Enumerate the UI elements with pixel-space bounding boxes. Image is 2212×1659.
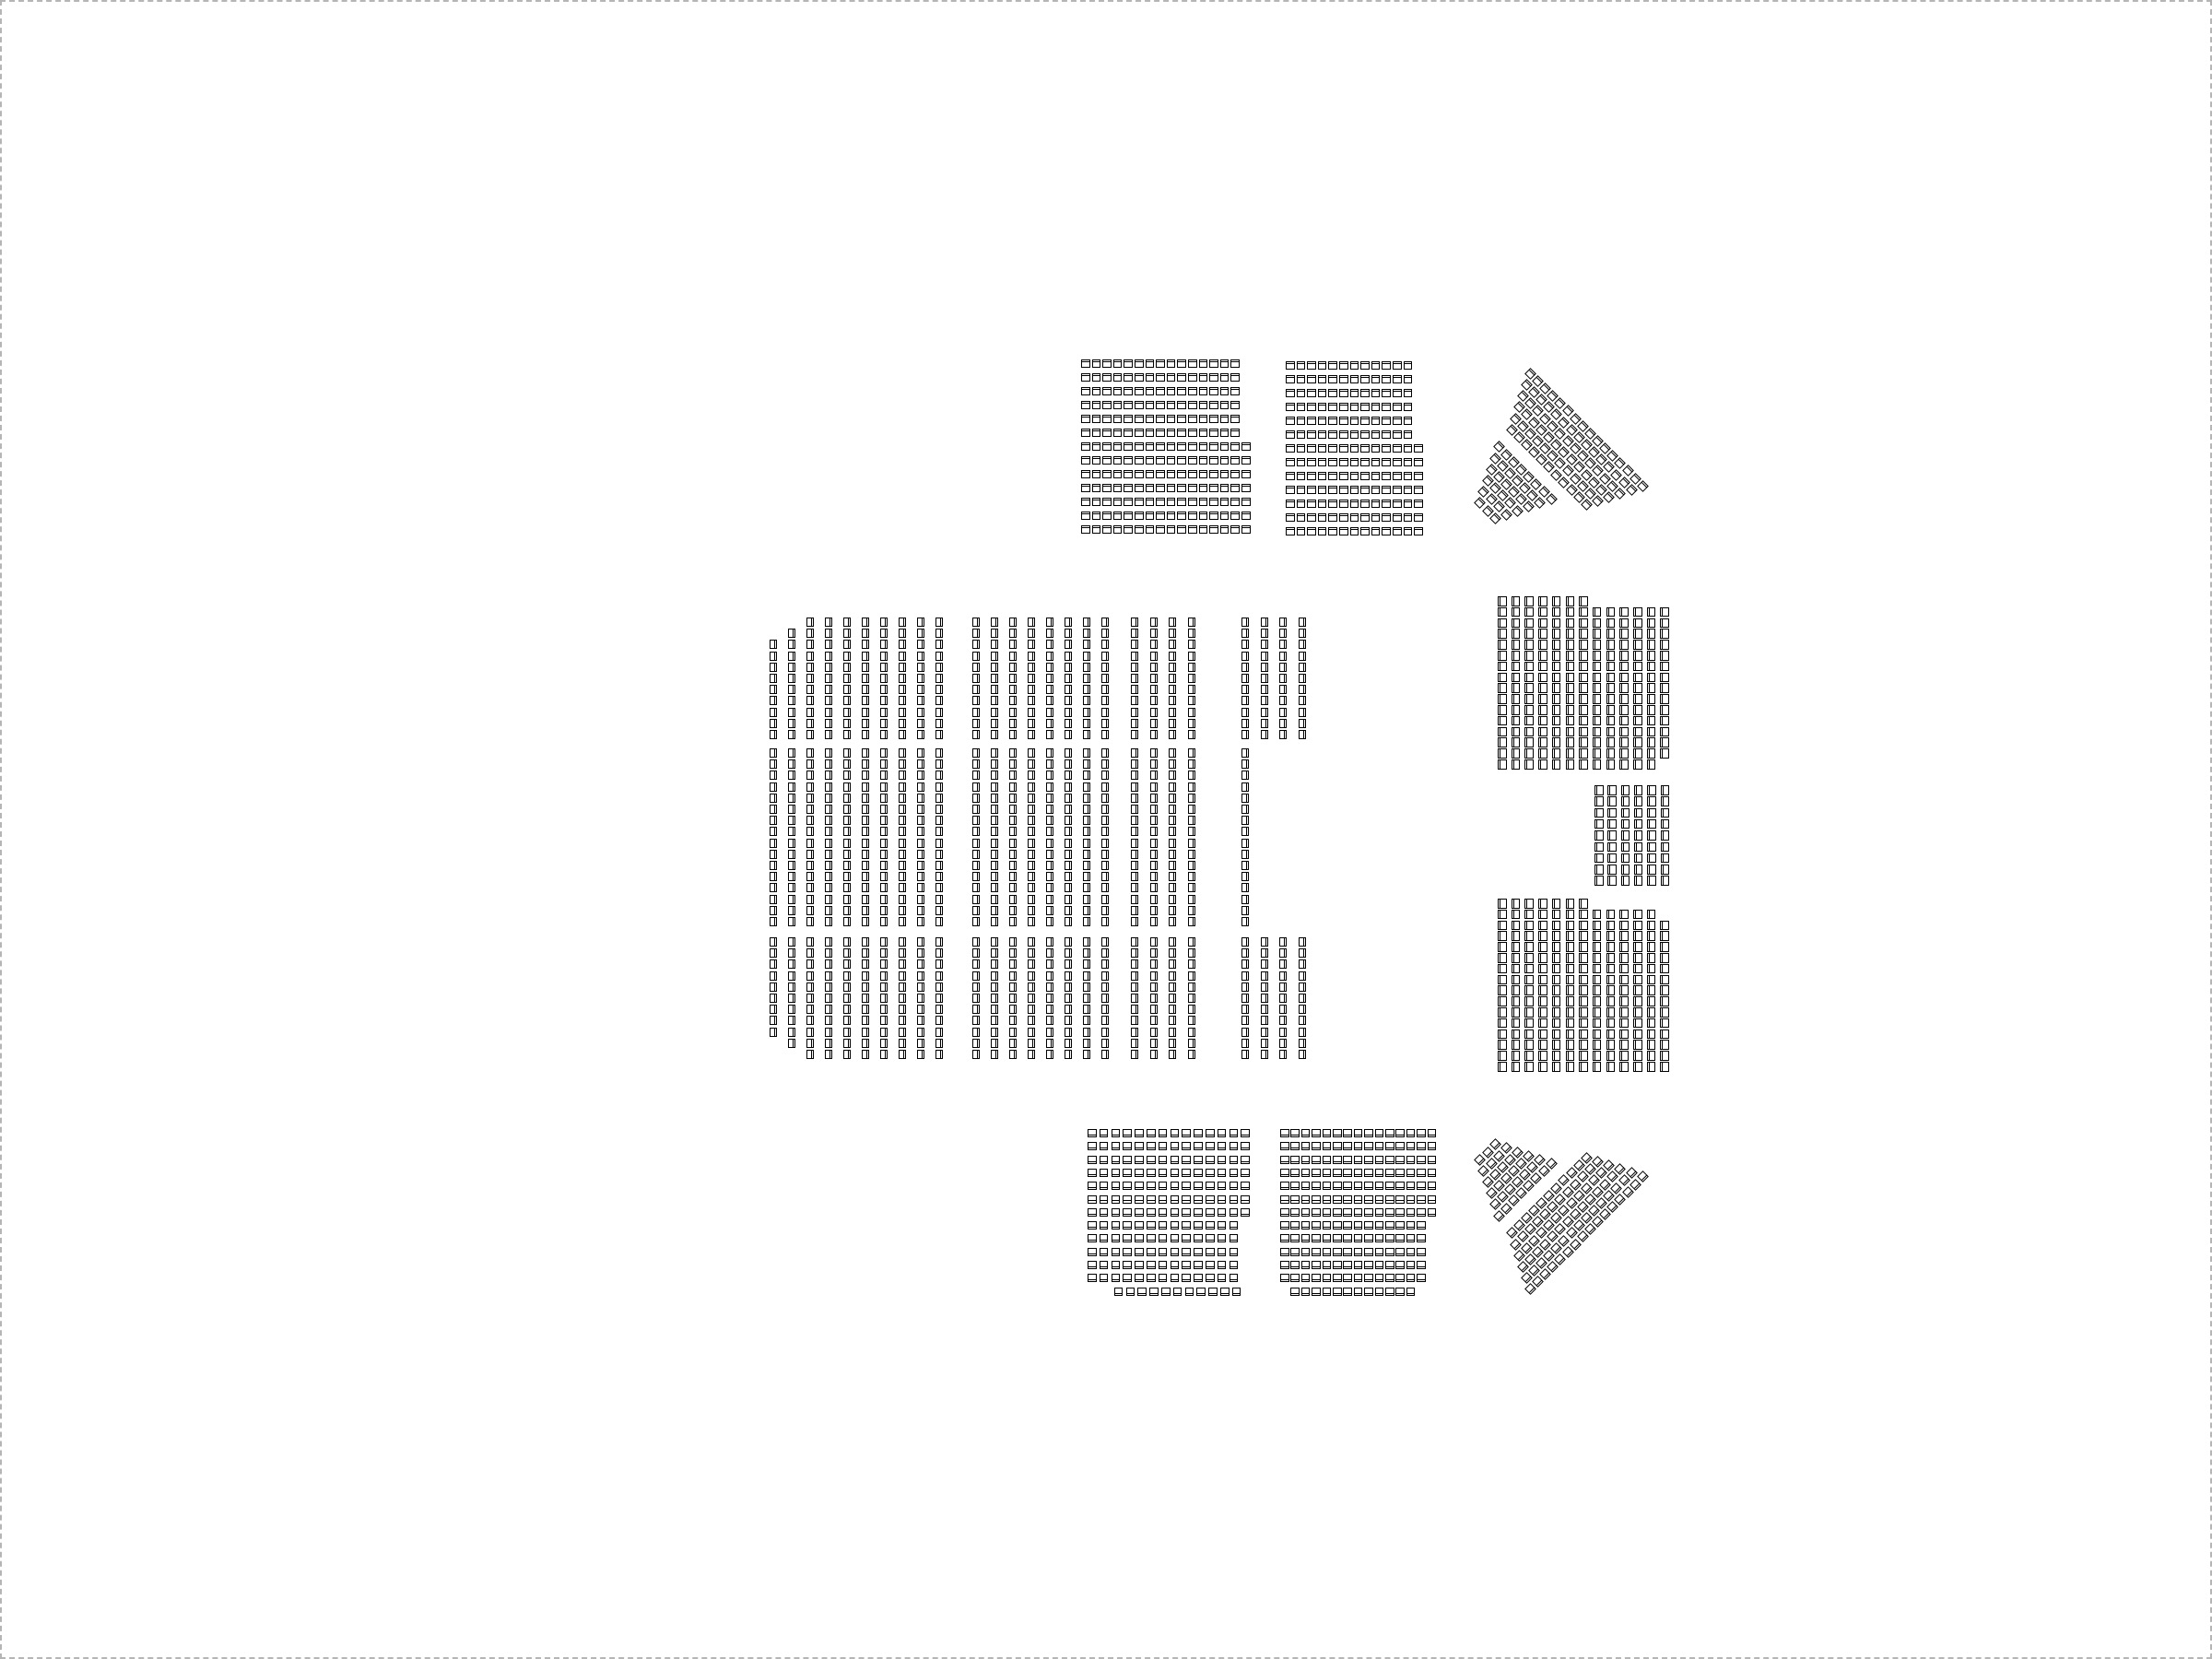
seat[interactable] [1113, 512, 1123, 520]
seat[interactable] [825, 674, 832, 683]
seat[interactable] [1512, 759, 1521, 770]
seat[interactable] [1088, 1248, 1097, 1256]
seat[interactable] [825, 971, 832, 981]
seat[interactable] [1647, 759, 1656, 770]
seat[interactable] [1241, 1129, 1250, 1137]
seat[interactable] [1538, 1018, 1547, 1029]
seat[interactable] [1028, 948, 1035, 958]
seat[interactable] [1112, 1156, 1121, 1164]
seat[interactable] [1328, 486, 1337, 494]
seat[interactable] [1112, 1208, 1121, 1217]
seat[interactable] [1156, 359, 1165, 368]
seat[interactable] [862, 1039, 869, 1048]
seat[interactable] [1113, 387, 1123, 395]
seat[interactable] [1028, 640, 1035, 649]
seat[interactable] [1297, 527, 1306, 535]
seat[interactable] [1538, 899, 1547, 909]
seat[interactable] [1512, 942, 1521, 952]
seat[interactable] [1528, 1235, 1540, 1247]
seat[interactable] [1566, 640, 1575, 650]
seat[interactable] [1218, 1182, 1227, 1190]
seat[interactable] [1606, 651, 1616, 661]
seat[interactable] [1028, 1050, 1035, 1059]
seat[interactable] [935, 1039, 943, 1048]
seat[interactable] [1261, 994, 1268, 1003]
seat[interactable] [1290, 1156, 1300, 1164]
seat[interactable] [1404, 403, 1413, 411]
seat[interactable] [843, 805, 851, 814]
seat[interactable] [1102, 525, 1112, 534]
seat[interactable] [1619, 705, 1629, 715]
seat[interactable] [1621, 785, 1630, 795]
seat[interactable] [1188, 917, 1195, 926]
seat[interactable] [1028, 816, 1035, 825]
seat[interactable] [1594, 853, 1604, 864]
seat[interactable] [1135, 1234, 1144, 1242]
seat[interactable] [1524, 759, 1534, 770]
seat[interactable] [1209, 359, 1218, 368]
seat[interactable] [1633, 1040, 1642, 1050]
seat[interactable] [1112, 1169, 1121, 1177]
seat[interactable] [1171, 1156, 1180, 1164]
seat[interactable] [1188, 1039, 1195, 1048]
seat[interactable] [1538, 942, 1547, 952]
seat[interactable] [1375, 1261, 1384, 1269]
seat[interactable] [1579, 964, 1588, 974]
seat[interactable] [1131, 782, 1138, 792]
seat[interactable] [972, 1016, 980, 1025]
seat[interactable] [1188, 415, 1197, 423]
seat[interactable] [1065, 748, 1072, 758]
seat[interactable] [917, 618, 924, 627]
seat[interactable] [991, 696, 998, 705]
seat[interactable] [843, 895, 851, 904]
seat[interactable] [1083, 982, 1090, 992]
seat[interactable] [1209, 415, 1218, 423]
seat[interactable] [1092, 442, 1101, 451]
seat[interactable] [770, 771, 777, 780]
seat[interactable] [1512, 953, 1521, 963]
seat[interactable] [1417, 1169, 1426, 1177]
seat[interactable] [1194, 1129, 1203, 1137]
seat[interactable] [972, 816, 980, 825]
seat[interactable] [1633, 975, 1642, 985]
seat[interactable] [1046, 850, 1053, 859]
seat[interactable] [843, 850, 851, 859]
seat[interactable] [862, 959, 869, 969]
seat[interactable] [991, 640, 998, 649]
seat[interactable] [1647, 931, 1656, 941]
seat[interactable] [1100, 1156, 1109, 1164]
seat[interactable] [1371, 389, 1381, 397]
seat[interactable] [972, 771, 980, 780]
seat[interactable] [1230, 484, 1240, 492]
seat[interactable] [1299, 674, 1306, 683]
seat[interactable] [1046, 794, 1053, 803]
seat[interactable] [1606, 759, 1616, 770]
seat[interactable] [1241, 1156, 1250, 1164]
seat[interactable] [1028, 759, 1035, 769]
seat[interactable] [1498, 596, 1507, 606]
seat[interactable] [1660, 942, 1669, 952]
seat[interactable] [1512, 683, 1521, 693]
seat[interactable] [1417, 1208, 1426, 1217]
seat[interactable] [917, 959, 924, 969]
seat[interactable] [862, 1028, 869, 1037]
seat[interactable] [1552, 931, 1561, 941]
seat[interactable] [1286, 389, 1295, 397]
seat[interactable] [1102, 415, 1112, 423]
seat[interactable] [1009, 982, 1017, 992]
seat[interactable] [1230, 1221, 1239, 1230]
seat[interactable] [1261, 948, 1268, 958]
seat[interactable] [1177, 456, 1186, 465]
seat[interactable] [788, 759, 795, 769]
seat[interactable] [899, 883, 906, 892]
seat[interactable] [899, 730, 906, 739]
seat[interactable] [1241, 748, 1249, 758]
seat[interactable] [1566, 629, 1575, 639]
seat[interactable] [1417, 1142, 1426, 1150]
seat[interactable] [917, 883, 924, 892]
seat[interactable] [1538, 910, 1547, 920]
seat[interactable] [1343, 1221, 1352, 1230]
seat[interactable] [770, 839, 777, 848]
seat[interactable] [1566, 651, 1575, 661]
seat[interactable] [1593, 921, 1602, 931]
seat[interactable] [1299, 663, 1306, 672]
seat[interactable] [1083, 948, 1090, 958]
seat[interactable] [1009, 719, 1017, 728]
seat[interactable] [1065, 861, 1072, 870]
seat[interactable] [1131, 1050, 1138, 1059]
seat[interactable] [1594, 842, 1604, 853]
seat[interactable] [1364, 1142, 1373, 1150]
seat[interactable] [1159, 1129, 1168, 1137]
seat[interactable] [1177, 484, 1186, 492]
seat[interactable] [1406, 1142, 1416, 1150]
seat[interactable] [1393, 361, 1402, 370]
seat[interactable] [1566, 1062, 1575, 1072]
seat[interactable] [1182, 1182, 1191, 1190]
seat[interactable] [1083, 937, 1090, 947]
seat[interactable] [1188, 456, 1197, 465]
seat[interactable] [1169, 696, 1176, 705]
seat[interactable] [1100, 1169, 1109, 1177]
seat[interactable] [1318, 389, 1327, 397]
seat[interactable] [1290, 1129, 1300, 1137]
seat[interactable] [1385, 1274, 1394, 1282]
seat[interactable] [770, 994, 777, 1003]
seat[interactable] [1301, 1248, 1311, 1256]
seat[interactable] [1350, 527, 1359, 535]
seat[interactable] [1290, 1274, 1300, 1282]
seat[interactable] [935, 872, 943, 881]
seat[interactable] [1083, 674, 1090, 683]
seat[interactable] [1124, 456, 1133, 465]
seat[interactable] [1188, 629, 1195, 638]
seat[interactable] [1065, 805, 1072, 814]
seat[interactable] [1364, 1221, 1373, 1230]
seat[interactable] [1112, 1248, 1121, 1256]
seat[interactable] [1299, 719, 1306, 728]
seat[interactable] [1290, 1208, 1300, 1217]
seat[interactable] [1046, 883, 1053, 892]
seat[interactable] [1230, 1234, 1239, 1242]
seat[interactable] [1169, 708, 1176, 717]
seat[interactable] [1241, 629, 1249, 638]
seat[interactable] [1169, 685, 1176, 694]
seat[interactable] [1634, 808, 1643, 818]
seat[interactable] [1360, 472, 1370, 480]
seat[interactable] [1131, 816, 1138, 825]
seat[interactable] [1188, 429, 1197, 437]
seat[interactable] [1297, 403, 1306, 411]
seat[interactable] [880, 994, 888, 1003]
seat[interactable] [1135, 1195, 1144, 1204]
seat[interactable] [1241, 895, 1249, 904]
seat[interactable] [1065, 906, 1072, 915]
seat[interactable] [1579, 651, 1588, 661]
seat[interactable] [1552, 953, 1561, 963]
seat[interactable] [880, 696, 888, 705]
seat[interactable] [1312, 1274, 1321, 1282]
seat[interactable] [1083, 618, 1090, 627]
seat[interactable] [788, 794, 795, 803]
seat[interactable] [1169, 861, 1176, 870]
seat[interactable] [1286, 403, 1295, 411]
seat[interactable] [1538, 705, 1547, 715]
seat[interactable] [1382, 527, 1391, 535]
seat[interactable] [1633, 921, 1642, 931]
seat[interactable] [1633, 683, 1642, 693]
seat[interactable] [1393, 513, 1402, 522]
seat[interactable] [806, 640, 814, 649]
seat[interactable] [972, 663, 980, 672]
seat[interactable] [1312, 1169, 1321, 1177]
seat[interactable] [1065, 794, 1072, 803]
seat[interactable] [1660, 618, 1669, 629]
seat[interactable] [770, 805, 777, 814]
seat[interactable] [843, 959, 851, 969]
seat[interactable] [1009, 748, 1017, 758]
seat[interactable] [1566, 964, 1575, 974]
seat[interactable] [1297, 486, 1306, 494]
seat[interactable] [1299, 730, 1306, 739]
seat[interactable] [880, 1016, 888, 1025]
seat[interactable] [1593, 716, 1602, 726]
seat[interactable] [1552, 651, 1561, 661]
seat[interactable] [1552, 705, 1561, 715]
seat[interactable] [1395, 1288, 1405, 1296]
seat[interactable] [825, 696, 832, 705]
seat[interactable] [1414, 527, 1423, 535]
seat[interactable] [1297, 389, 1306, 397]
seat[interactable] [1299, 971, 1306, 981]
seat[interactable] [1241, 917, 1249, 926]
seat[interactable] [1290, 1182, 1300, 1190]
seat[interactable] [1538, 953, 1547, 963]
seat[interactable] [1241, 1050, 1249, 1059]
seat[interactable] [1593, 1040, 1602, 1050]
seat[interactable] [1028, 685, 1035, 694]
seat[interactable] [1524, 1062, 1534, 1072]
seat[interactable] [1606, 910, 1616, 920]
seat[interactable] [1555, 1253, 1567, 1265]
seat[interactable] [899, 708, 906, 717]
seat[interactable] [1123, 1274, 1132, 1282]
seat[interactable] [1188, 663, 1195, 672]
seat[interactable] [806, 937, 814, 947]
seat[interactable] [1318, 486, 1327, 494]
seat[interactable] [1414, 500, 1423, 508]
seat[interactable] [1619, 651, 1629, 661]
seat[interactable] [880, 906, 888, 915]
seat[interactable] [788, 1016, 795, 1025]
seat[interactable] [1371, 486, 1381, 494]
seat[interactable] [1633, 737, 1642, 747]
seat[interactable] [1241, 512, 1251, 520]
seat[interactable] [1395, 1234, 1405, 1242]
seat[interactable] [1647, 796, 1656, 806]
seat[interactable] [880, 937, 888, 947]
seat[interactable] [1046, 759, 1053, 769]
seat[interactable] [1566, 1227, 1578, 1239]
seat[interactable] [1147, 1274, 1156, 1282]
seat[interactable] [1552, 1062, 1561, 1072]
seat[interactable] [1414, 472, 1423, 480]
seat[interactable] [1101, 618, 1109, 627]
seat[interactable] [1500, 509, 1512, 521]
seat[interactable] [1220, 525, 1230, 534]
seat[interactable] [1123, 1142, 1132, 1150]
seat[interactable] [1579, 1040, 1588, 1050]
seat[interactable] [1607, 865, 1617, 875]
seat[interactable] [1279, 685, 1287, 694]
seat[interactable] [1404, 417, 1413, 425]
seat[interactable] [1220, 373, 1230, 382]
seat[interactable] [1566, 1007, 1575, 1018]
seat[interactable] [1131, 827, 1138, 836]
seat[interactable] [1046, 839, 1053, 848]
seat[interactable] [1364, 1129, 1373, 1137]
seat[interactable] [1619, 737, 1629, 747]
seat[interactable] [1101, 906, 1109, 915]
seat[interactable] [806, 674, 814, 683]
seat[interactable] [1150, 618, 1158, 627]
seat[interactable] [1621, 830, 1630, 841]
seat[interactable] [1512, 910, 1521, 920]
seat[interactable] [1538, 607, 1547, 618]
seat[interactable] [1113, 498, 1123, 506]
seat[interactable] [1112, 1221, 1121, 1230]
seat[interactable] [935, 895, 943, 904]
seat[interactable] [1188, 782, 1195, 792]
seat[interactable] [843, 652, 851, 661]
seat[interactable] [788, 1005, 795, 1014]
seat[interactable] [1135, 498, 1144, 506]
seat[interactable] [1371, 500, 1381, 508]
seat[interactable] [1169, 719, 1176, 728]
seat[interactable] [1647, 865, 1656, 875]
seat[interactable] [1354, 1288, 1363, 1296]
seat[interactable] [1552, 1007, 1561, 1018]
seat[interactable] [770, 850, 777, 859]
seat[interactable] [1092, 498, 1101, 506]
seat[interactable] [1395, 1142, 1405, 1150]
seat[interactable] [1092, 401, 1101, 409]
seat[interactable] [1131, 994, 1138, 1003]
seat[interactable] [1393, 527, 1402, 535]
seat[interactable] [1552, 716, 1561, 726]
seat[interactable] [1167, 525, 1176, 534]
seat[interactable] [1343, 1169, 1352, 1177]
seat[interactable] [1209, 456, 1218, 465]
seat[interactable] [1524, 996, 1534, 1006]
seat[interactable] [1009, 861, 1017, 870]
seat[interactable] [1261, 674, 1268, 683]
seat[interactable] [899, 872, 906, 881]
seat[interactable] [1312, 1288, 1321, 1296]
seat[interactable] [1524, 629, 1534, 639]
seat[interactable] [972, 959, 980, 969]
seat[interactable] [1619, 618, 1629, 629]
seat[interactable] [1046, 971, 1053, 981]
seat[interactable] [1512, 748, 1521, 759]
seat[interactable] [1615, 488, 1627, 500]
seat[interactable] [972, 1050, 980, 1059]
seat[interactable] [1150, 872, 1158, 881]
seat[interactable] [1101, 883, 1109, 892]
seat[interactable] [1552, 673, 1561, 683]
seat[interactable] [1579, 683, 1588, 693]
seat[interactable] [788, 782, 795, 792]
seat[interactable] [1524, 640, 1534, 650]
seat[interactable] [1406, 1208, 1416, 1217]
seat[interactable] [1371, 375, 1381, 383]
seat[interactable] [1123, 1248, 1132, 1256]
seat[interactable] [972, 759, 980, 769]
seat[interactable] [1081, 401, 1090, 409]
seat[interactable] [788, 827, 795, 836]
seat[interactable] [1206, 1169, 1215, 1177]
seat[interactable] [1660, 1051, 1669, 1061]
seat[interactable] [1538, 1040, 1547, 1050]
seat[interactable] [1524, 705, 1534, 715]
seat[interactable] [1538, 1007, 1547, 1018]
seat[interactable] [1261, 719, 1268, 728]
seat[interactable] [880, 850, 888, 859]
seat[interactable] [862, 782, 869, 792]
seat[interactable] [1559, 1235, 1571, 1247]
seat[interactable] [917, 719, 924, 728]
seat[interactable] [1538, 629, 1547, 639]
seat[interactable] [1647, 953, 1656, 963]
seat[interactable] [935, 906, 943, 915]
seat[interactable] [1343, 1288, 1352, 1296]
seat[interactable] [1081, 525, 1090, 534]
seat[interactable] [972, 1039, 980, 1048]
seat[interactable] [1083, 1039, 1090, 1048]
seat[interactable] [1521, 1272, 1533, 1284]
seat[interactable] [935, 816, 943, 825]
seat[interactable] [1538, 694, 1547, 704]
seat[interactable] [1182, 1208, 1191, 1217]
seat[interactable] [1404, 375, 1413, 383]
seat[interactable] [1417, 1274, 1426, 1282]
seat[interactable] [1101, 708, 1109, 717]
seat[interactable] [806, 861, 814, 870]
